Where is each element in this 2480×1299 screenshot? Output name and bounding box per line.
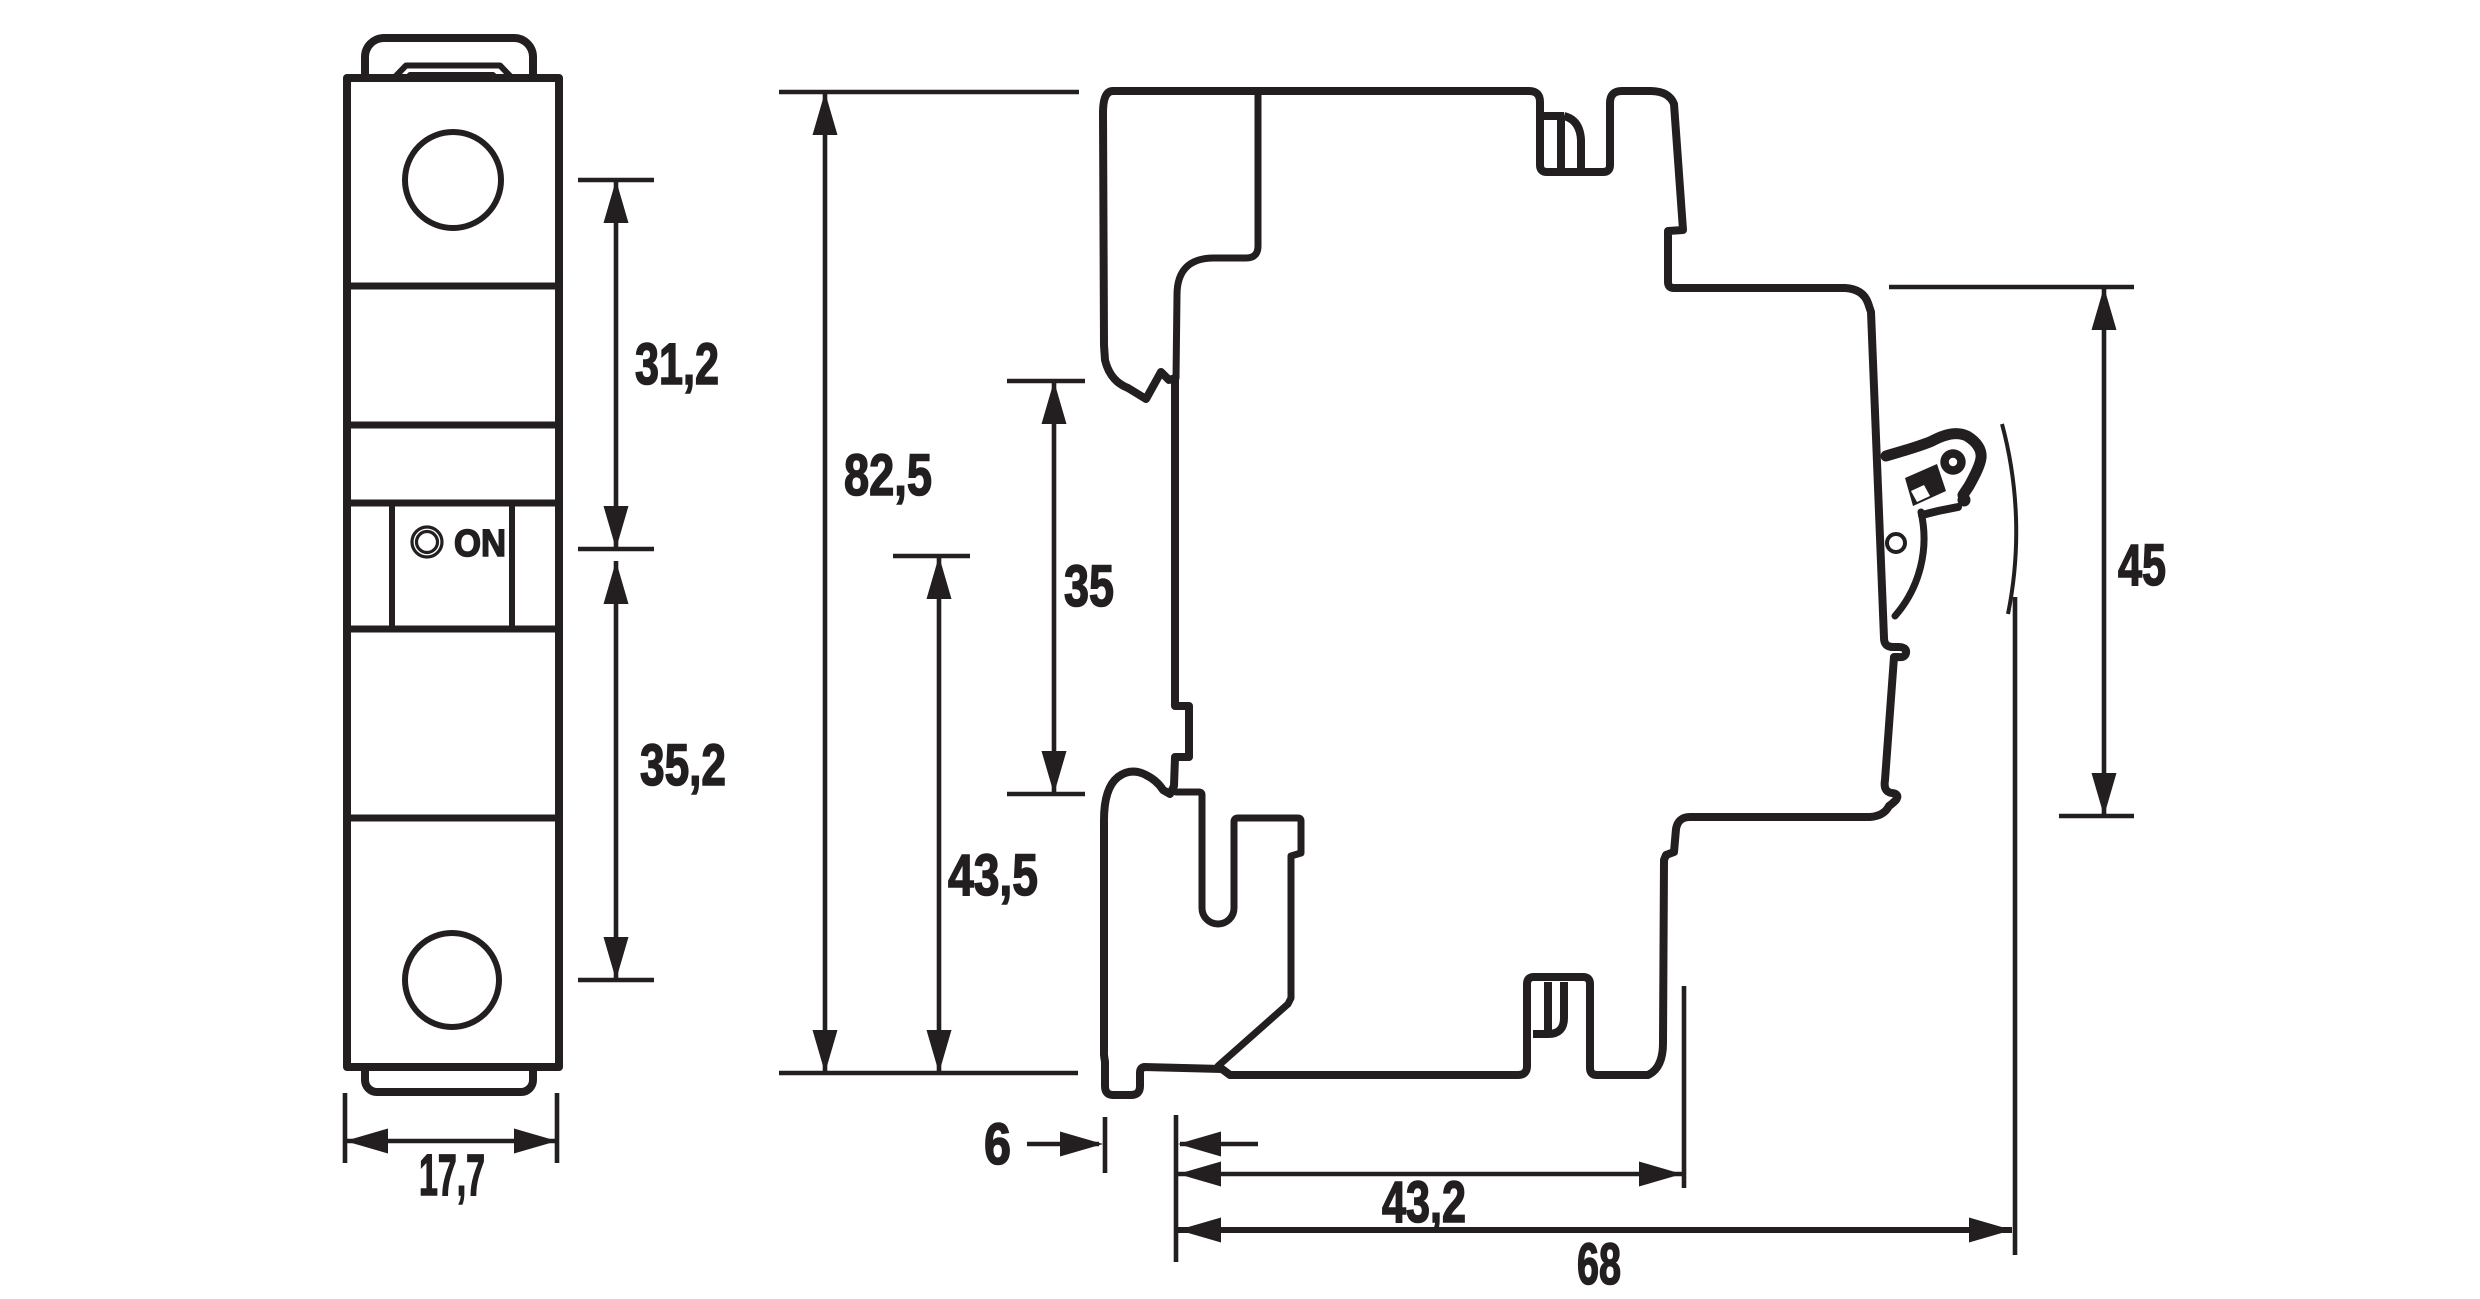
svg-text:35,2: 35,2 <box>640 733 726 798</box>
svg-text:31,2: 31,2 <box>635 332 719 397</box>
svg-text:ON: ON <box>454 523 506 565</box>
svg-text:82,5: 82,5 <box>844 443 932 508</box>
svg-text:6: 6 <box>984 1112 1011 1177</box>
svg-text:35: 35 <box>1064 554 1114 619</box>
svg-text:43,2: 43,2 <box>1382 1170 1466 1235</box>
svg-text:17,7: 17,7 <box>419 1143 485 1208</box>
svg-text:68: 68 <box>1577 1232 1621 1297</box>
svg-text:43,5: 43,5 <box>948 843 1038 908</box>
svg-text:45: 45 <box>2118 533 2166 598</box>
